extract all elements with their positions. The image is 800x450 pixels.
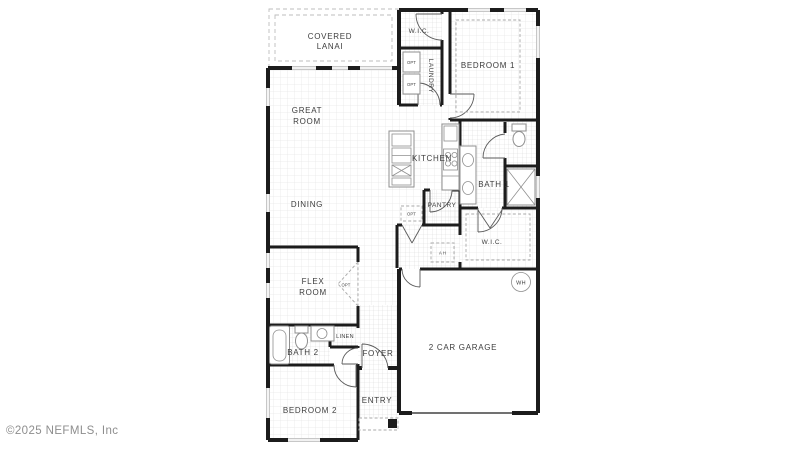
- linen-label: LINEN: [336, 334, 354, 340]
- opt-dryer-label: OPT: [407, 82, 416, 87]
- covered-lanai-label: COVERED: [308, 32, 352, 41]
- bath2-tub-icon: [270, 326, 290, 364]
- water-heater-label: WH: [516, 281, 526, 287]
- dining-label: DINING: [291, 200, 323, 209]
- bath1-toilet-icon: [512, 124, 526, 147]
- entry-post: [388, 419, 397, 428]
- flex-room-label-2: ROOM: [299, 288, 327, 297]
- bath2-label: BATH 2: [287, 348, 319, 357]
- opt-washer-label: OPT: [407, 60, 416, 65]
- bath2-vanity: [311, 326, 334, 341]
- air-handler-label: A H: [439, 251, 446, 256]
- opt-cabinet-label: OPT: [407, 212, 416, 217]
- kitchen-island: [389, 131, 414, 187]
- bath1-shower-icon: [507, 169, 535, 205]
- laundry-label: LAUNDRY: [427, 59, 434, 94]
- bedroom1-label: BEDROOM 1: [461, 61, 515, 70]
- floor-plan-drawing: COVERED LANAI W.I.C. LAUNDRY BEDROOM 1 G…: [0, 0, 800, 450]
- bedroom2-label: BEDROOM 2: [283, 406, 337, 415]
- foyer-label: FOYER: [362, 349, 393, 358]
- bath1-vanity: [460, 146, 476, 204]
- wic-top-label: W.I.C.: [409, 28, 430, 35]
- bath1-label: BATH 1: [478, 180, 510, 189]
- bath2-toilet-icon: [295, 326, 308, 349]
- flex-room-label: FLEX: [302, 277, 325, 286]
- kitchen-label: KITCHEN: [412, 154, 452, 163]
- garage-label: 2 CAR GARAGE: [429, 343, 497, 352]
- opt-flex-doors-label: OPT: [342, 283, 351, 288]
- great-room-label: GREAT: [292, 106, 322, 115]
- wic-main-label: W.I.C.: [482, 239, 503, 246]
- pantry-label: PANTRY: [428, 202, 457, 209]
- floor-plan-page: COVERED LANAI W.I.C. LAUNDRY BEDROOM 1 G…: [0, 0, 800, 450]
- covered-lanai-label-2: LANAI: [317, 42, 344, 51]
- entry-label: ENTRY: [362, 396, 392, 405]
- watermark: ©2025 NEFMLS, Inc: [6, 425, 118, 437]
- great-room-label-2: ROOM: [293, 117, 321, 126]
